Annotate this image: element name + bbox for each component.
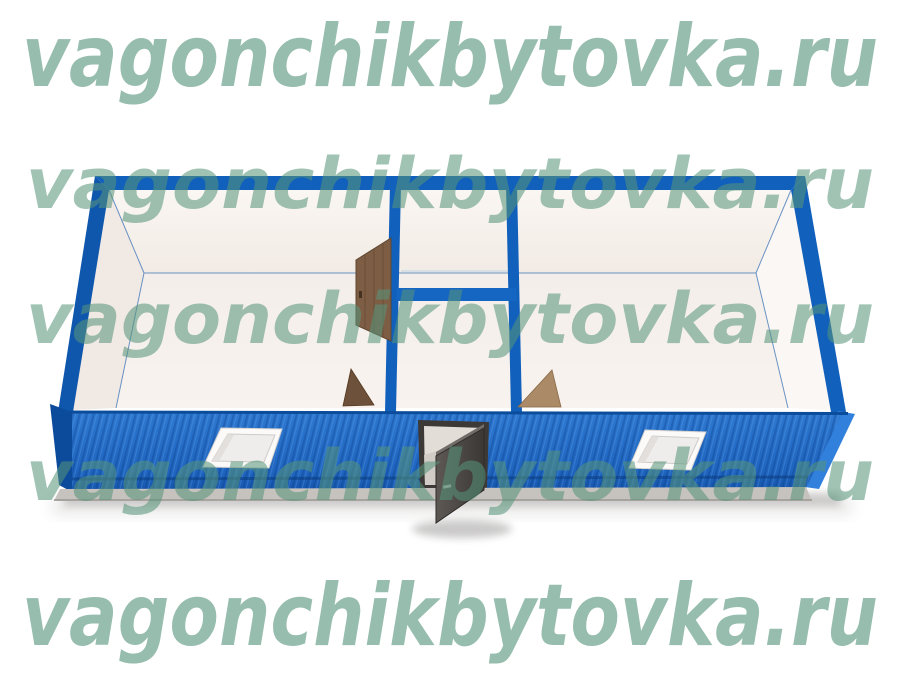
watermark-row-1: vagonchikbytovka.ru <box>22 7 878 107</box>
watermark-row-4: vagonchikbytovka.ru <box>26 435 874 517</box>
roof-trim-line <box>58 412 848 414</box>
door-shadow <box>412 520 512 538</box>
watermark-row-3: vagonchikbytovka.ru <box>26 278 874 360</box>
watermark-row-2: vagonchikbytovka.ru <box>26 143 874 225</box>
watermark-row-5: vagonchikbytovka.ru <box>22 566 878 666</box>
product-render-cabin-scene: vagonchikbytovka.ru vagonchikbytovka.ru … <box>0 0 900 675</box>
watermark: vagonchikbytovka.ru vagonchikbytovka.ru … <box>22 7 878 666</box>
cabin-illustration: vagonchikbytovka.ru vagonchikbytovka.ru … <box>0 0 900 675</box>
